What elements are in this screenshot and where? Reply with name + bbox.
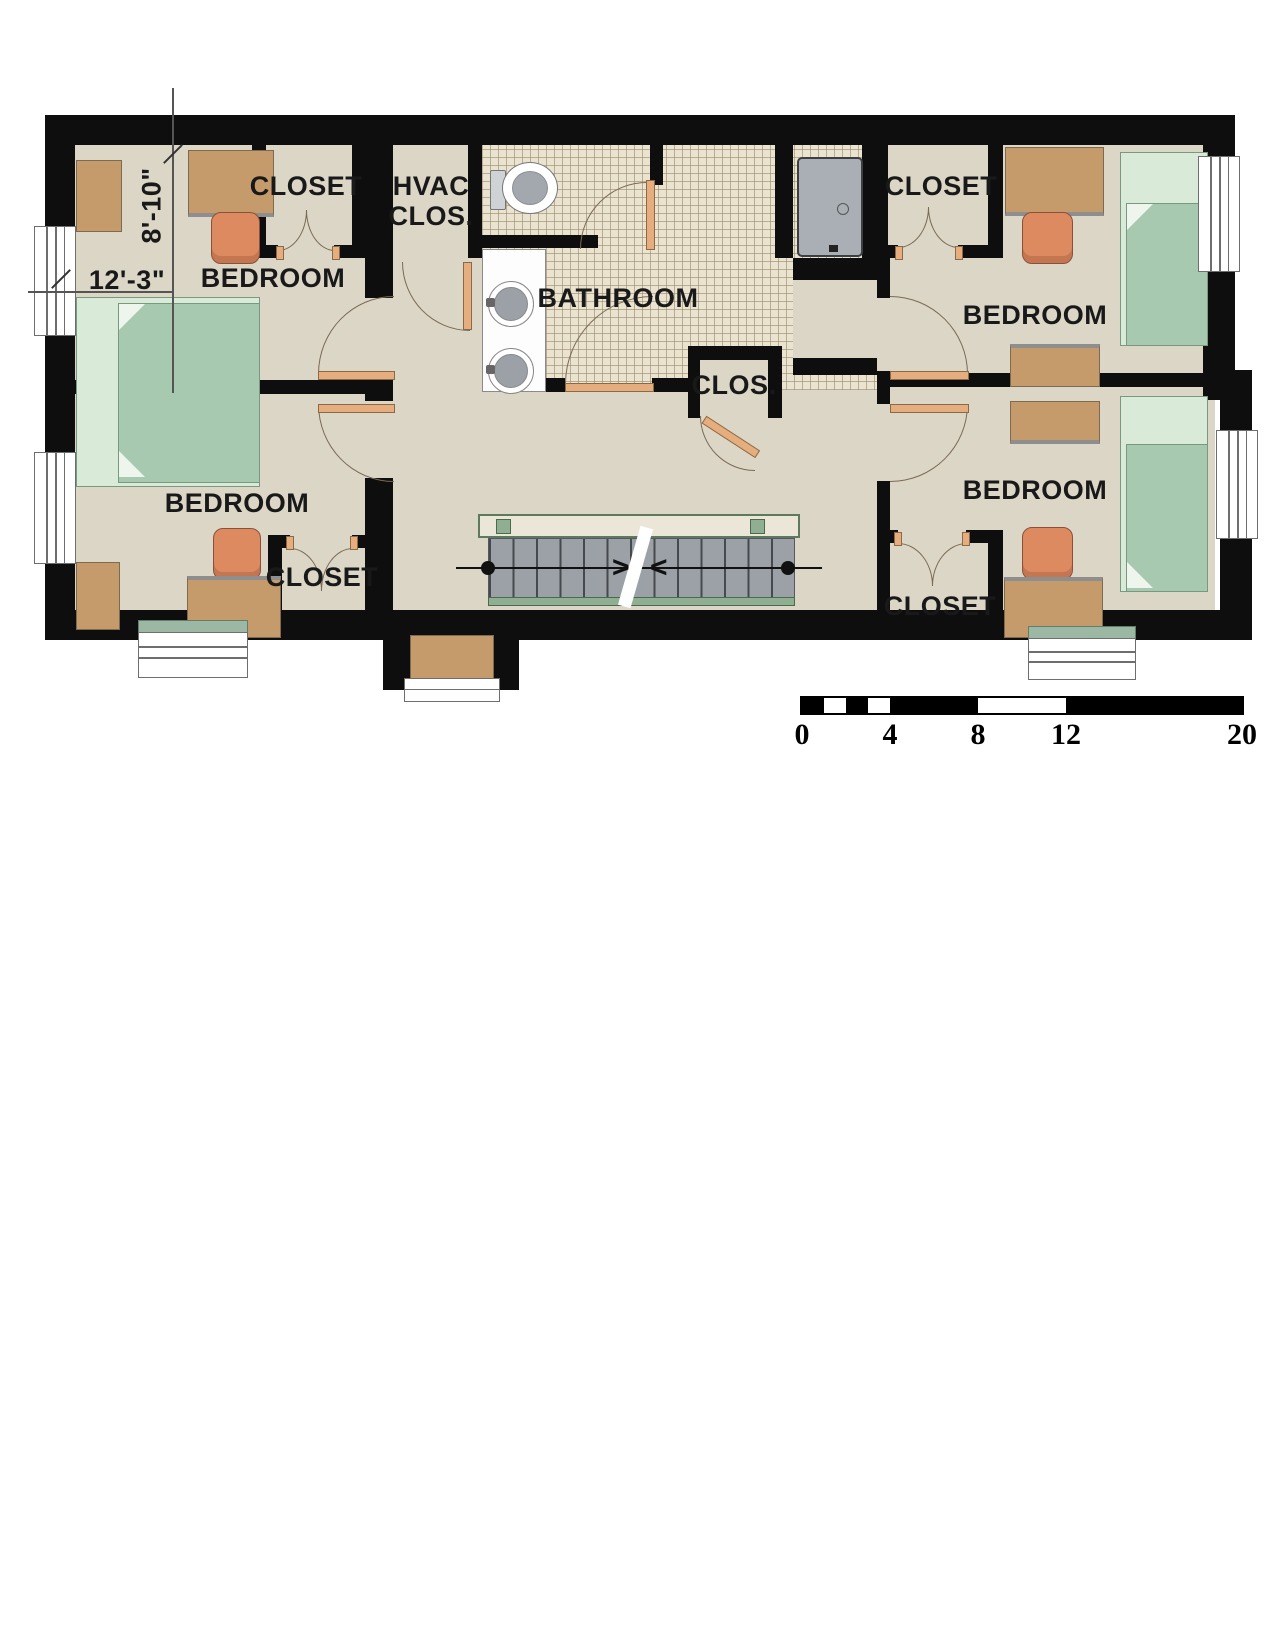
room-label-hvac-line2: CLOS. (371, 203, 491, 230)
stair-line-dot (781, 561, 795, 575)
door-icon (895, 246, 903, 260)
notch-wall-top (793, 258, 877, 280)
desk-icon (1010, 344, 1100, 387)
room-label-closet-bl: CLOSET (252, 564, 392, 591)
dimension-line-vertical (172, 88, 174, 393)
scale-tick-label: 0 (772, 718, 832, 752)
room-label-bedroom-tl: BEDROOM (193, 265, 353, 292)
scale-tick-label: 20 (1212, 718, 1272, 752)
window-icon (138, 632, 248, 678)
scale-tick-label: 8 (948, 718, 1008, 752)
window-icon (1216, 430, 1258, 539)
scale-bar (800, 696, 1244, 715)
door-icon (332, 246, 340, 260)
door-icon (350, 536, 358, 550)
door-icon (890, 404, 969, 413)
desk-icon (1010, 401, 1100, 444)
toilet-room-wall-right (650, 145, 663, 185)
room-label-bedroom-tr: BEDROOM (955, 302, 1115, 329)
room-label-hall-closet: CLOS. (674, 372, 794, 399)
door-icon (276, 246, 284, 260)
chair-icon (1022, 527, 1073, 580)
railing-post (496, 519, 511, 534)
scale-bar-segment (802, 698, 824, 713)
scale-bar-segment (1066, 698, 1242, 713)
notch-wall-bottom (793, 358, 877, 375)
chair-icon (211, 212, 260, 264)
desk-icon (76, 562, 120, 630)
stair-line-dot (481, 561, 495, 575)
window-icon (1028, 638, 1136, 680)
closet-tl-wall-right (352, 145, 393, 258)
toilet-icon (490, 162, 558, 214)
closet-tr-wall-right (988, 145, 1003, 258)
room-label-bedroom-br: BEDROOM (955, 477, 1115, 504)
room-label-hvac-line1: HVAC (371, 173, 491, 200)
window-icon (1198, 156, 1240, 272)
hall-wall-right-upper (877, 258, 890, 298)
bed-icon (1126, 203, 1208, 346)
bed-icon (118, 303, 260, 483)
window-icon (404, 678, 500, 702)
room-label-bathroom: BATHROOM (528, 285, 708, 312)
hall-wall-right-lower (877, 481, 890, 530)
door-icon (286, 536, 294, 550)
exterior-wall-top (45, 115, 1235, 145)
railing-post (750, 519, 765, 534)
window-icon (34, 452, 76, 564)
room-label-bedroom-bl: BEDROOM (157, 490, 317, 517)
room-label-closet-br: CLOSET (870, 593, 1010, 620)
bed-icon (1126, 444, 1208, 592)
stair-break-mark: < (650, 553, 668, 583)
desk-icon (1005, 147, 1104, 216)
floor-plan-canvas: > < 8'-10" 12'-3" BEDROOM BEDROOM BEDROO… (0, 0, 1275, 1650)
hall-wall-left-upper (365, 258, 393, 298)
scale-tick-label: 4 (860, 718, 920, 752)
stair-edge-strip (488, 597, 795, 606)
door-icon (565, 383, 654, 392)
door-icon (955, 246, 963, 260)
scale-bar-segment (890, 698, 978, 713)
shower-wall-left (775, 145, 793, 258)
door-icon (894, 532, 902, 546)
door-icon (962, 532, 970, 546)
door-icon (646, 180, 655, 250)
chair-icon (1022, 212, 1073, 264)
dimension-width-label: 12'-3" (57, 267, 197, 294)
door-icon (463, 262, 472, 330)
sink-icon (488, 348, 534, 394)
window-seat (410, 635, 494, 681)
floor-notch (793, 278, 877, 360)
door-icon (318, 371, 395, 380)
dimension-depth-label: 8'-10" (139, 146, 166, 266)
scale-bar-segment (846, 698, 868, 713)
door-icon (318, 404, 395, 413)
room-label-closet-tl: CLOSET (236, 173, 376, 200)
door-icon (890, 371, 969, 380)
room-label-closet-tr: CLOSET (871, 173, 1011, 200)
desk-icon (76, 160, 122, 232)
hall-wall-right-top (862, 145, 888, 258)
shower-icon (797, 157, 863, 257)
scale-tick-label: 12 (1036, 718, 1096, 752)
stair-break-mark: > (612, 553, 630, 583)
